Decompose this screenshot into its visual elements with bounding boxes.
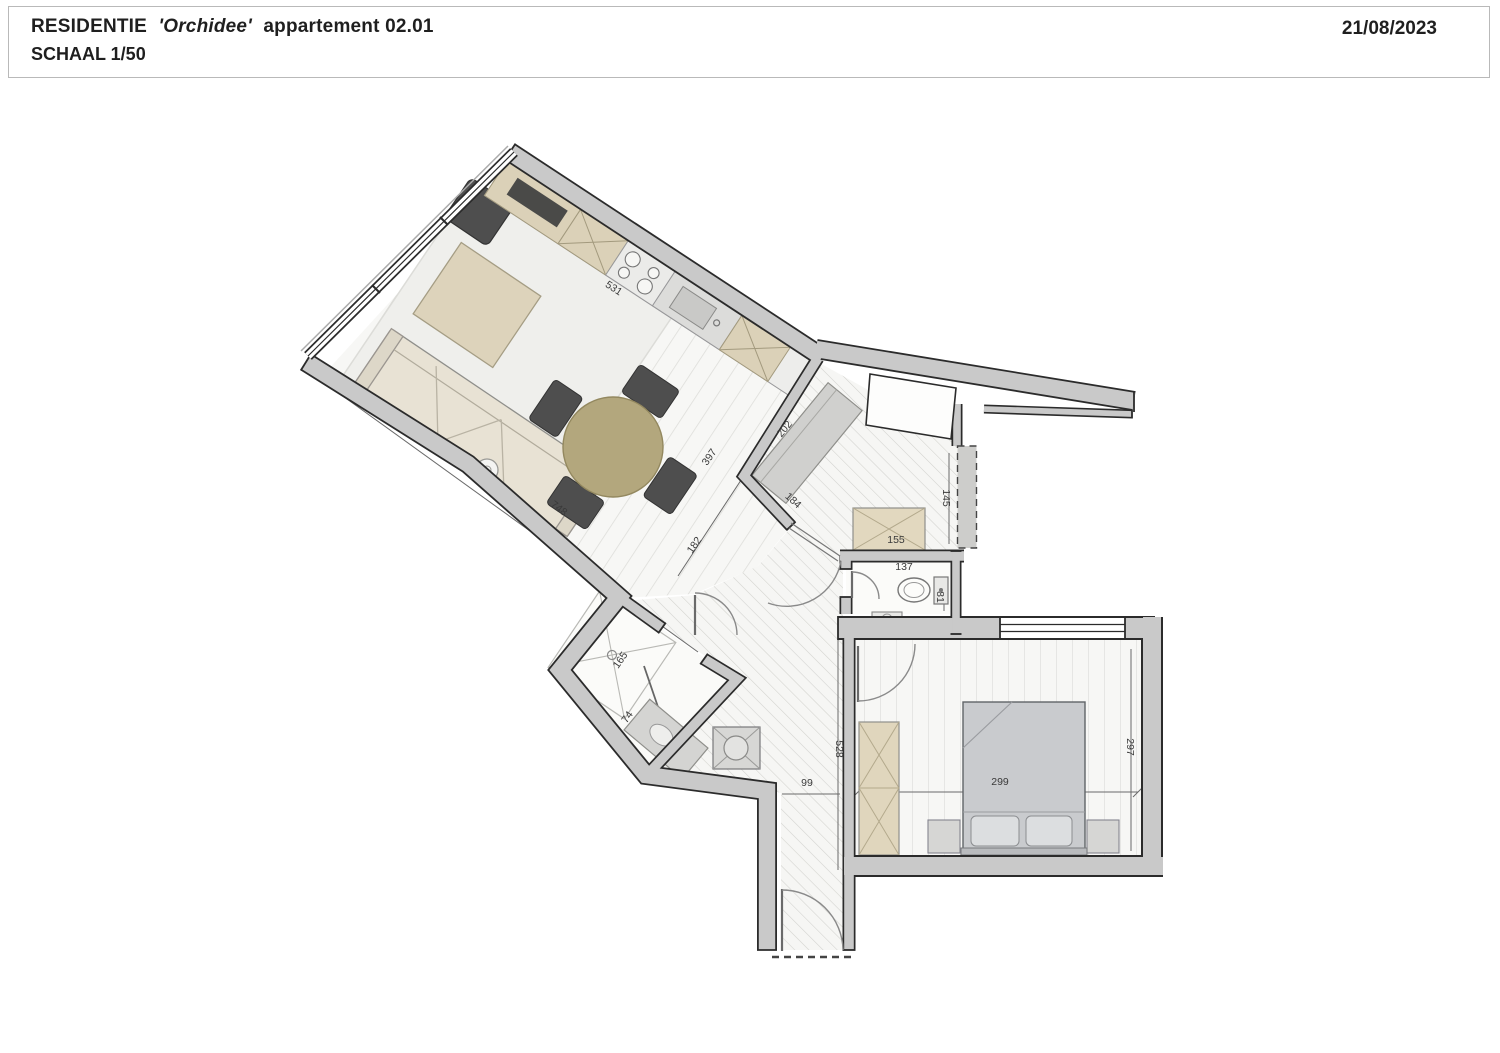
washing-machine [713, 727, 760, 769]
date-label: 21/08/2023 [1342, 18, 1437, 40]
nightstand [928, 820, 960, 853]
double-bed [961, 702, 1087, 855]
dim-entry-length: 528 [833, 740, 845, 758]
wardrobe [859, 722, 899, 855]
dashed-screen-wall [958, 446, 977, 548]
title-block: RESIDENTIE 'Orchidee' appartement 02.01 … [8, 6, 1490, 78]
residence-name: 'Orchidee' [159, 16, 252, 37]
dim-storage-cabinet: 155 [887, 534, 905, 546]
project-name: RESIDENTIE [31, 16, 147, 37]
dim-bedroom-width: 299 [991, 776, 1009, 788]
pillow [971, 816, 1019, 846]
floor-plan-page: 531 748 397 182 202 184 145 155 137 81 1… [0, 0, 1500, 1053]
dim-hall-width: 145 [940, 489, 952, 507]
bedroom-window [1000, 617, 1125, 639]
dim-entry-width: 99 [801, 777, 813, 789]
unit-label: appartement 02.01 [263, 16, 433, 37]
headboard [961, 848, 1087, 855]
scale-label: SCHAAL 1/50 [31, 44, 146, 65]
project-title: RESIDENTIE 'Orchidee' appartement 02.01 [31, 16, 434, 38]
dim-toilet-width: 137 [895, 561, 913, 573]
dim-bedroom-depth: 297 [1124, 738, 1136, 756]
dim-toilet-depth: 81 [934, 591, 946, 603]
floor-plan-drawing: 531 748 397 182 202 184 145 155 137 81 1… [0, 0, 1500, 1053]
nightstand [1087, 820, 1119, 853]
pillow [1026, 816, 1072, 846]
